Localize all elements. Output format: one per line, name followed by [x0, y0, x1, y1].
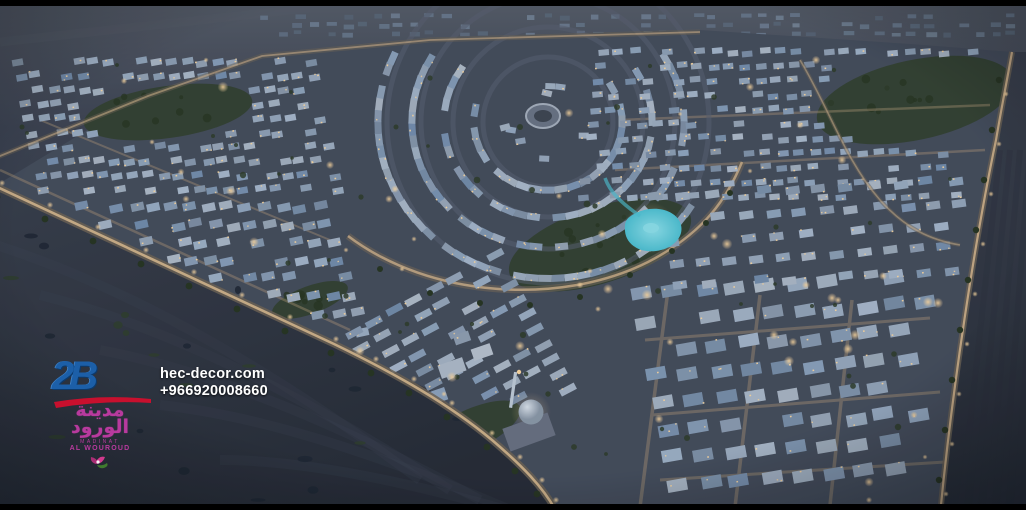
- contact-block: hec-decor.com +966920008660: [160, 366, 268, 400]
- brand-arabic-calligraphy: مدينة الورود: [52, 402, 148, 436]
- letterbox-bar-bottom: [0, 504, 1026, 510]
- rose-flower-icon: [52, 453, 148, 474]
- agency-logo-text: 2B: [52, 358, 152, 394]
- video-frame: 2B hec-decor.com +966920008660 مدينة الو…: [0, 0, 1026, 510]
- letterbox-bar-top: [0, 0, 1026, 6]
- brand-latin-line2: AL WOUROUD: [52, 445, 148, 452]
- developer-brand-logo: مدينة الورود MADINAT AL WOUROUD: [52, 402, 148, 474]
- phone-text: +966920008660: [160, 383, 268, 400]
- aerial-city-render: [0, 0, 1026, 510]
- website-text: hec-decor.com: [160, 366, 268, 383]
- watermark: 2B hec-decor.com +966920008660 مدينة الو…: [52, 358, 268, 408]
